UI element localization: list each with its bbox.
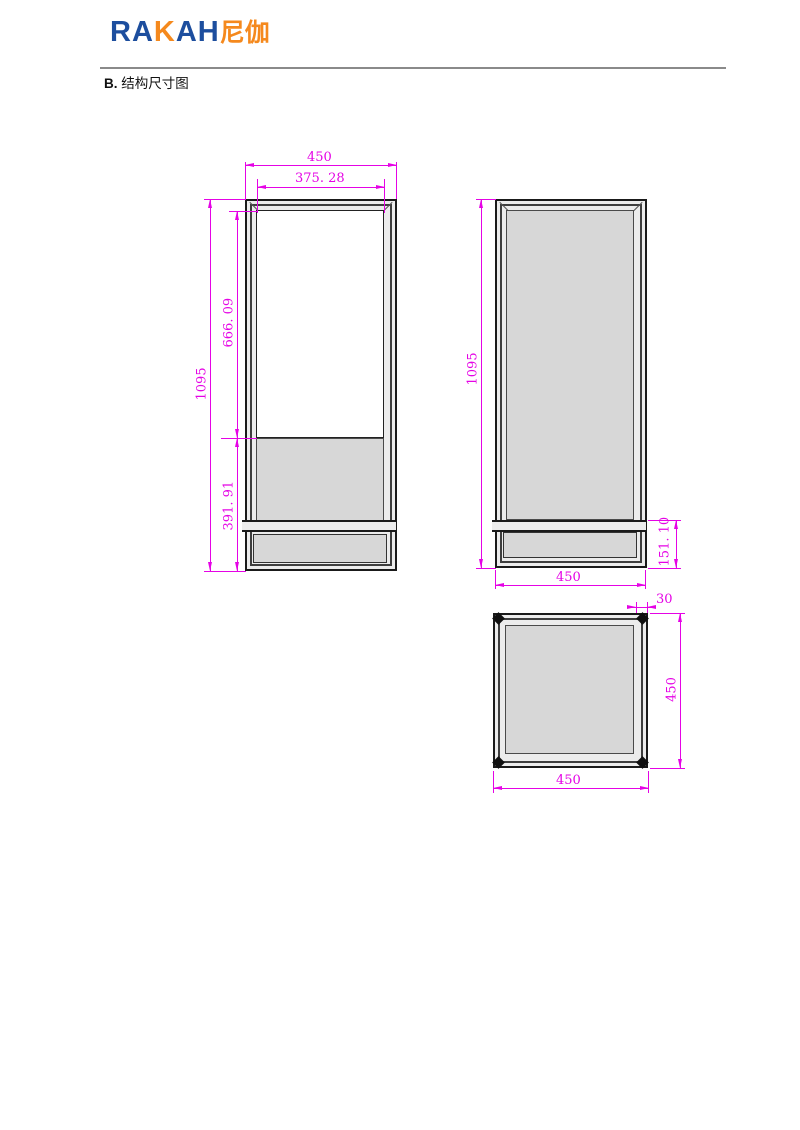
dim-arrow (245, 163, 254, 167)
dim-line-top-width (493, 788, 649, 789)
dim-arrow (479, 199, 483, 208)
extension-line (650, 768, 685, 769)
top-panel-area (505, 625, 634, 754)
dim-arrow (678, 759, 682, 768)
dim-line-front-height (210, 199, 211, 571)
dim-label-top-frame-offset: 30 (656, 592, 673, 607)
dim-label-front-lower-height: 391. 91 (222, 483, 237, 531)
front-base-panel (253, 534, 387, 563)
dim-arrow (493, 786, 502, 790)
front-screen-area (256, 210, 384, 438)
dim-arrow (257, 185, 266, 189)
corner-wedge (636, 612, 649, 625)
dim-arrow (495, 583, 504, 587)
dim-line-front-inner-width (257, 187, 385, 188)
dim-arrow (647, 605, 656, 609)
dim-label-front-screen-height: 666. 09 (222, 300, 237, 348)
dim-label-top-width: 450 (556, 773, 581, 788)
back-view-drawing (495, 199, 647, 568)
dim-arrow (235, 211, 239, 220)
section-label: B. (104, 76, 118, 91)
corner-wedge (636, 756, 649, 769)
extension-line (245, 162, 246, 199)
miter-line (633, 202, 642, 211)
dim-line-back-height (481, 199, 482, 568)
dim-label-front-width: 450 (307, 150, 332, 165)
dim-label-back-width: 450 (556, 570, 581, 585)
logo-text-blue-left: RA (110, 16, 154, 48)
extension-line (221, 438, 257, 439)
dim-arrow (388, 163, 397, 167)
dim-line-front-lower-height (237, 438, 238, 571)
dim-label-back-height: 1095 (466, 354, 481, 386)
document-page: RAKAH尼伽 B. 结构尺寸图 450 375. 28 1095 666. 0… (0, 0, 800, 1130)
back-panel-area (506, 210, 634, 520)
extension-line (229, 211, 257, 212)
dim-arrow (376, 185, 385, 189)
dim-arrow (208, 562, 212, 571)
extension-line (476, 568, 496, 569)
logo-text-chinese: 尼伽 (220, 19, 270, 47)
back-divider-trim (492, 520, 646, 532)
extension-line (648, 568, 681, 569)
extension-line (396, 162, 397, 199)
dim-arrow (627, 605, 636, 609)
section-title: 结构尺寸图 (121, 76, 189, 91)
extension-line (204, 571, 246, 572)
dim-line-top-depth (680, 613, 681, 768)
front-divider-trim (242, 520, 396, 532)
front-lower-panel (256, 438, 384, 521)
rakah-logo: RAKAH尼伽 (110, 16, 270, 49)
dim-arrow (208, 199, 212, 208)
dim-label-top-depth: 450 (665, 674, 680, 706)
dim-label-front-inner-width: 375. 28 (295, 171, 345, 186)
corner-wedge (492, 612, 505, 625)
corner-wedge (492, 756, 505, 769)
dim-line-back-width (495, 585, 646, 586)
top-view-drawing (493, 613, 648, 768)
dim-arrow (637, 583, 646, 587)
dim-arrow (479, 559, 483, 568)
header-divider-line (100, 67, 726, 69)
dim-arrow (640, 786, 649, 790)
back-base-panel (503, 532, 637, 558)
front-view-drawing (245, 199, 397, 571)
dim-arrow (235, 429, 239, 438)
logo-text-blue-right: AH (176, 16, 220, 48)
dim-arrow (674, 559, 678, 568)
dim-label-back-base-height: 151. 10 (658, 521, 673, 567)
logo-text-orange-k: K (154, 16, 176, 48)
section-heading: B. 结构尺寸图 (104, 72, 189, 92)
dim-line-front-screen-height (237, 211, 238, 438)
dim-line-front-width (245, 165, 397, 166)
dim-arrow (674, 520, 678, 529)
dim-arrow (678, 613, 682, 622)
dim-arrow (235, 562, 239, 571)
dim-label-front-height: 1095 (195, 369, 210, 401)
dim-arrow (235, 438, 239, 447)
